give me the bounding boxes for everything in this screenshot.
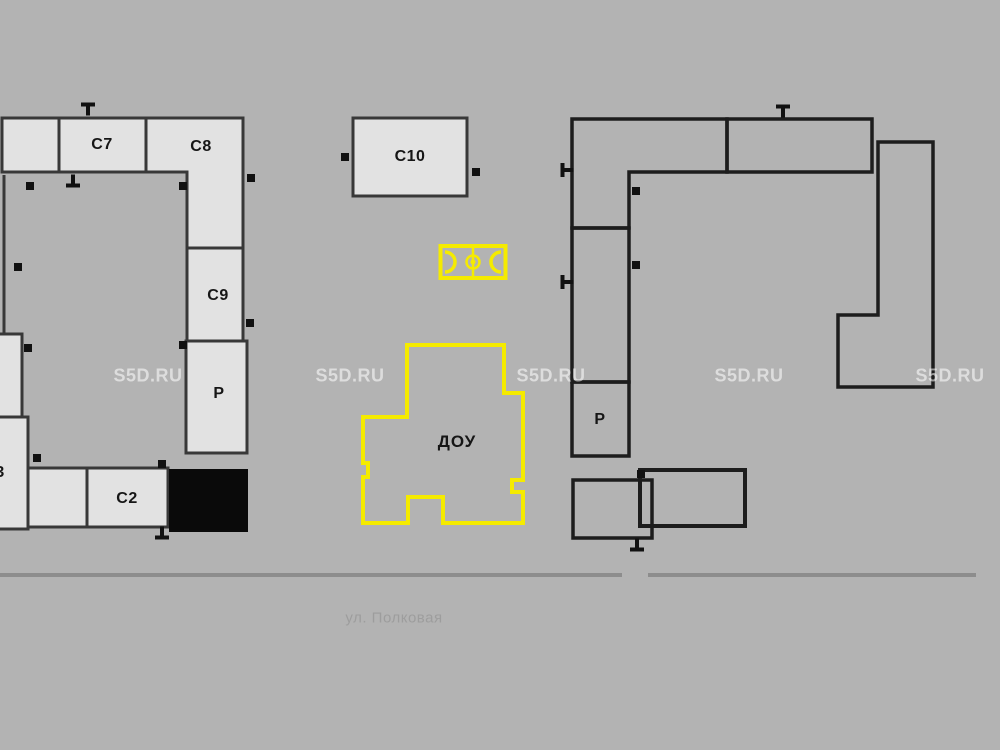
entrance-tick-icon	[776, 105, 790, 118]
building-bottomrow-left	[28, 468, 87, 527]
entrance-tick-icon	[158, 460, 166, 468]
parking-left-label[interactable]: Р	[213, 385, 224, 403]
entrance-tick-icon	[14, 263, 22, 271]
building-label-c9[interactable]: С9	[207, 287, 228, 305]
entrance-tick-icon	[472, 168, 480, 176]
entrance-tick-icon	[179, 341, 187, 349]
entrance-tick-icon	[637, 470, 645, 478]
entrance-tick-icon	[81, 103, 95, 116]
entrance-tick-icon	[24, 344, 32, 352]
entrance-tick-icon	[26, 182, 34, 190]
building-label-c10[interactable]: С10	[395, 148, 426, 166]
building-label-partial-lower: С3	[0, 464, 5, 482]
building-label-c2[interactable]: С2	[116, 490, 137, 508]
sport-field-icon[interactable]	[441, 246, 506, 278]
building-right-bottom-e[interactable]	[640, 470, 745, 526]
entrance-tick-icon	[66, 175, 80, 188]
watermark-text: S5D.RU	[714, 366, 783, 387]
building-right-tall[interactable]	[838, 142, 933, 387]
street-line	[0, 573, 622, 577]
building-right-midcolumn[interactable]	[572, 228, 629, 382]
entrance-tick-icon	[155, 527, 169, 540]
entrance-tick-icon	[632, 187, 640, 195]
entrance-tick-icon	[630, 539, 644, 552]
watermark-text: S5D.RU	[516, 366, 585, 387]
entrance-tick-icon	[247, 174, 255, 182]
building-partial-topleft	[2, 118, 59, 172]
entrance-tick-icon	[632, 261, 640, 269]
entrance-tick-icon	[246, 319, 254, 327]
building-partial-left-upper	[0, 334, 22, 417]
entrance-tick-icon	[561, 163, 574, 177]
building-label-c8[interactable]: С8	[190, 138, 211, 156]
entrance-tick-icon	[341, 153, 349, 161]
watermark-text: S5D.RU	[915, 366, 984, 387]
entrance-tick-icon	[561, 275, 574, 289]
building-right-corner[interactable]	[572, 119, 727, 228]
street-name-label: ул. Полковая	[345, 610, 442, 627]
black-block	[170, 470, 247, 531]
watermark-text: S5D.RU	[113, 366, 182, 387]
entrance-tick-icon	[179, 182, 187, 190]
watermark-text: S5D.RU	[315, 366, 384, 387]
building-label-c7[interactable]: С7	[91, 136, 112, 154]
kindergarten-label[interactable]: ДОУ	[438, 432, 477, 452]
entrance-tick-icon	[33, 454, 41, 462]
site-plan: С7 С8 С9 Р С10 С2 Р ДОУ 5 С3 S5D.RUS5D.R…	[0, 0, 1000, 750]
parking-right-label[interactable]: Р	[594, 411, 605, 429]
street-line	[648, 573, 976, 577]
building-right-topbar[interactable]	[727, 119, 872, 172]
